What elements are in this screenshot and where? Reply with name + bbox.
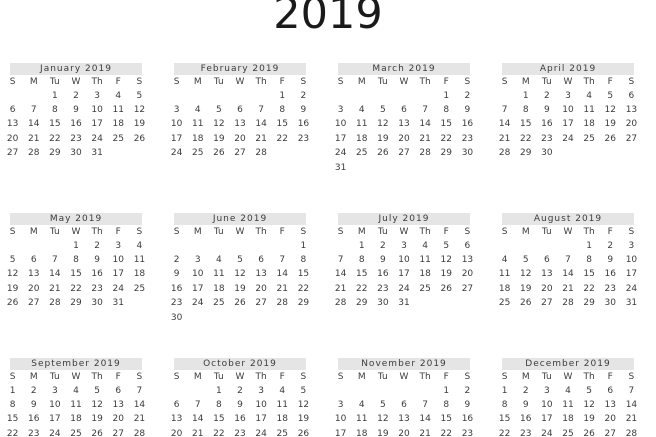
day-cell: 13 <box>229 120 250 129</box>
week-row: 123 <box>494 239 642 253</box>
week-row: 3456789 <box>330 103 478 117</box>
day-cell: 28 <box>129 430 150 437</box>
day-header-row: SMTuWThFS <box>166 75 314 89</box>
day-header-cell: F <box>436 228 457 237</box>
day-cell: 27 <box>536 299 557 308</box>
day-cell: 1 <box>44 92 65 101</box>
day-cell: 20 <box>2 135 23 144</box>
day-cell: 7 <box>272 256 293 265</box>
day-cell: 11 <box>129 256 150 265</box>
day-cell: 16 <box>293 120 314 129</box>
day-cell: 2 <box>457 387 478 396</box>
day-cell: 22 <box>208 430 229 437</box>
day-cell: 19 <box>129 120 150 129</box>
day-cell: 24 <box>330 149 351 158</box>
week-row: 30 <box>166 311 314 325</box>
day-cell: 14 <box>187 415 208 424</box>
day-cell: 30 <box>600 299 621 308</box>
day-cell: 24 <box>187 299 208 308</box>
day-cell: 3 <box>251 387 272 396</box>
week-row: 6789101112 <box>166 398 314 412</box>
month-title: February 2019 <box>174 63 306 75</box>
day-cell: 15 <box>494 415 515 424</box>
day-cell: 24 <box>44 430 65 437</box>
day-cell: 18 <box>129 270 150 279</box>
day-cell: 7 <box>23 106 44 115</box>
day-header-cell: F <box>600 373 621 382</box>
day-cell: 2 <box>87 242 108 251</box>
day-cell: 11 <box>187 120 208 129</box>
day-cell: 24 <box>166 149 187 158</box>
day-header-cell: Tu <box>44 228 65 237</box>
day-cell: 10 <box>187 270 208 279</box>
day-header-cell: M <box>515 228 536 237</box>
week-row: 17181920212223 <box>330 132 478 146</box>
day-cell: 3 <box>536 387 557 396</box>
week-row: 6789101112 <box>2 103 150 117</box>
day-cell: 13 <box>393 415 414 424</box>
year-title: 2019 <box>0 0 656 36</box>
day-cell: 26 <box>579 430 600 437</box>
day-header-cell: S <box>166 78 187 87</box>
day-cell: 27 <box>457 285 478 294</box>
day-cell: 18 <box>272 415 293 424</box>
month-april-2019: April 2019SMTuWThFS123456789101112131415… <box>494 63 642 161</box>
day-cell: 21 <box>44 285 65 294</box>
day-cell: 4 <box>579 92 600 101</box>
day-cell: 7 <box>187 401 208 410</box>
day-header-cell: W <box>229 228 250 237</box>
day-cell: 19 <box>600 120 621 129</box>
day-cell: 19 <box>229 285 250 294</box>
month-october-2019: October 2019SMTuWThFS1234567891011121314… <box>166 358 314 437</box>
day-cell: 17 <box>330 135 351 144</box>
day-cell: 30 <box>166 314 187 323</box>
day-cell: 4 <box>557 387 578 396</box>
day-header-cell: F <box>108 78 129 87</box>
day-cell: 10 <box>108 256 129 265</box>
day-cell: 26 <box>600 135 621 144</box>
week-row: 13141516171819 <box>166 413 314 427</box>
calendar-page: 2019 January 2019SMTuWThFS12345678910111… <box>0 0 656 437</box>
day-header-cell: M <box>187 78 208 87</box>
day-cell: 6 <box>23 256 44 265</box>
day-cell: 12 <box>436 256 457 265</box>
day-cell: 6 <box>251 256 272 265</box>
month-february-2019: February 2019SMTuWThFS123456789101112131… <box>166 63 314 161</box>
day-cell: 14 <box>494 120 515 129</box>
day-cell: 19 <box>293 415 314 424</box>
day-cell: 27 <box>251 299 272 308</box>
day-cell: 1 <box>351 242 372 251</box>
day-cell: 4 <box>494 256 515 265</box>
day-cell: 8 <box>515 106 536 115</box>
day-header-cell: M <box>187 228 208 237</box>
day-header-cell: Th <box>415 228 436 237</box>
week-row: 12345 <box>166 384 314 398</box>
day-cell: 23 <box>372 285 393 294</box>
day-header-cell: Th <box>579 373 600 382</box>
day-cell: 6 <box>393 106 414 115</box>
day-header-cell: W <box>65 228 86 237</box>
day-cell: 6 <box>229 106 250 115</box>
day-header-cell: Tu <box>536 78 557 87</box>
day-header-cell: M <box>23 373 44 382</box>
day-cell: 2 <box>166 256 187 265</box>
day-cell: 3 <box>166 106 187 115</box>
day-header-cell: S <box>621 78 642 87</box>
day-cell: 9 <box>166 270 187 279</box>
day-cell: 7 <box>251 106 272 115</box>
day-cell: 23 <box>293 135 314 144</box>
month-august-2019: August 2019SMTuWThFS12345678910111213141… <box>494 213 642 311</box>
day-cell: 21 <box>415 135 436 144</box>
day-cell: 16 <box>515 415 536 424</box>
day-cell: 18 <box>415 270 436 279</box>
day-header-row: SMTuWThFS <box>2 75 150 89</box>
day-cell: 23 <box>87 285 108 294</box>
day-cell: 24 <box>393 285 414 294</box>
day-cell: 11 <box>108 106 129 115</box>
day-cell: 4 <box>65 387 86 396</box>
day-cell: 2 <box>293 92 314 101</box>
day-cell: 5 <box>87 387 108 396</box>
day-cell: 13 <box>251 270 272 279</box>
day-cell: 22 <box>515 135 536 144</box>
day-cell: 5 <box>129 92 150 101</box>
day-cell: 10 <box>166 120 187 129</box>
day-header-cell: F <box>600 78 621 87</box>
day-header-cell: S <box>2 78 23 87</box>
day-cell: 12 <box>208 120 229 129</box>
day-header-cell: M <box>351 373 372 382</box>
day-cell: 1 <box>436 92 457 101</box>
day-cell: 10 <box>44 401 65 410</box>
day-header-cell: S <box>166 373 187 382</box>
day-cell: 6 <box>108 387 129 396</box>
day-header-cell: Tu <box>44 373 65 382</box>
week-row: 10111213141516 <box>166 118 314 132</box>
week-row: 21222324252627 <box>494 132 642 146</box>
day-cell: 6 <box>393 401 414 410</box>
day-header-cell: S <box>129 78 150 87</box>
day-header-cell: F <box>600 228 621 237</box>
day-cell: 20 <box>229 135 250 144</box>
week-row: 282930 <box>494 147 642 161</box>
day-cell: 5 <box>208 106 229 115</box>
day-cell: 29 <box>515 149 536 158</box>
day-cell: 23 <box>23 430 44 437</box>
day-header-cell: F <box>272 373 293 382</box>
month-title: October 2019 <box>174 358 306 370</box>
day-header-cell: Tu <box>208 373 229 382</box>
day-header-cell: Tu <box>44 78 65 87</box>
day-cell: 3 <box>330 106 351 115</box>
day-cell: 17 <box>251 415 272 424</box>
day-cell: 16 <box>23 415 44 424</box>
day-cell: 13 <box>108 401 129 410</box>
day-cell: 22 <box>272 135 293 144</box>
day-cell: 17 <box>330 430 351 437</box>
week-row: 78910111213 <box>494 103 642 117</box>
day-cell: 10 <box>87 106 108 115</box>
day-cell: 7 <box>557 256 578 265</box>
day-cell: 18 <box>65 415 86 424</box>
day-cell: 11 <box>579 106 600 115</box>
month-title: November 2019 <box>338 358 470 370</box>
day-header-row: SMTuWThFS <box>494 370 642 384</box>
day-cell: 8 <box>579 256 600 265</box>
day-cell: 4 <box>351 106 372 115</box>
day-cell: 4 <box>108 92 129 101</box>
day-cell: 19 <box>579 415 600 424</box>
day-cell: 2 <box>457 92 478 101</box>
day-cell: 23 <box>229 430 250 437</box>
week-row: 78910111213 <box>330 253 478 267</box>
day-cell: 9 <box>457 106 478 115</box>
day-cell: 20 <box>23 285 44 294</box>
day-header-cell: S <box>457 78 478 87</box>
week-row: 262728293031 <box>2 297 150 311</box>
week-row: 12345 <box>2 89 150 103</box>
day-cell: 3 <box>557 92 578 101</box>
day-cell: 10 <box>393 256 414 265</box>
day-cell: 20 <box>393 430 414 437</box>
day-cell: 12 <box>579 401 600 410</box>
day-cell: 24 <box>536 430 557 437</box>
day-cell: 10 <box>536 401 557 410</box>
day-cell: 13 <box>457 256 478 265</box>
day-cell: 5 <box>372 106 393 115</box>
day-cell: 23 <box>457 430 478 437</box>
day-cell: 12 <box>87 401 108 410</box>
day-cell: 11 <box>351 415 372 424</box>
day-cell: 29 <box>65 299 86 308</box>
day-cell: 19 <box>208 135 229 144</box>
day-cell: 17 <box>557 120 578 129</box>
week-row: 28293031 <box>330 297 478 311</box>
day-cell: 26 <box>87 430 108 437</box>
day-cell: 5 <box>600 92 621 101</box>
day-cell: 23 <box>515 430 536 437</box>
week-row: 22232425262728 <box>2 427 150 437</box>
day-cell: 17 <box>44 415 65 424</box>
day-cell: 22 <box>579 285 600 294</box>
day-cell: 3 <box>330 401 351 410</box>
day-cell: 7 <box>129 387 150 396</box>
day-cell: 8 <box>2 401 23 410</box>
day-cell: 22 <box>2 430 23 437</box>
day-cell: 26 <box>293 430 314 437</box>
day-cell: 25 <box>65 430 86 437</box>
day-header-cell: S <box>293 228 314 237</box>
day-cell: 27 <box>621 135 642 144</box>
day-cell: 31 <box>393 299 414 308</box>
day-cell: 19 <box>436 270 457 279</box>
day-cell: 12 <box>515 270 536 279</box>
day-cell: 22 <box>44 135 65 144</box>
day-cell: 26 <box>515 299 536 308</box>
day-cell: 23 <box>457 135 478 144</box>
day-cell: 9 <box>23 401 44 410</box>
day-cell: 16 <box>372 270 393 279</box>
day-header-cell: W <box>393 373 414 382</box>
day-header-cell: Th <box>251 373 272 382</box>
day-cell: 5 <box>579 387 600 396</box>
day-cell: 16 <box>229 415 250 424</box>
day-cell: 3 <box>87 92 108 101</box>
day-cell: 9 <box>457 401 478 410</box>
day-header-cell: Th <box>251 228 272 237</box>
day-cell: 25 <box>415 285 436 294</box>
day-header-cell: M <box>23 228 44 237</box>
day-cell: 18 <box>108 120 129 129</box>
day-cell: 14 <box>415 120 436 129</box>
week-row: 2425262728 <box>166 147 314 161</box>
day-header-row: SMTuWThFS <box>166 225 314 239</box>
day-cell: 8 <box>293 256 314 265</box>
day-cell: 17 <box>393 270 414 279</box>
day-cell: 10 <box>330 120 351 129</box>
day-header-cell: W <box>557 78 578 87</box>
day-cell: 26 <box>372 149 393 158</box>
day-cell: 13 <box>23 270 44 279</box>
day-cell: 12 <box>129 106 150 115</box>
day-cell: 1 <box>494 387 515 396</box>
day-cell: 20 <box>393 135 414 144</box>
day-cell: 2 <box>536 92 557 101</box>
day-cell: 22 <box>293 285 314 294</box>
day-cell: 28 <box>251 149 272 158</box>
day-cell: 9 <box>293 106 314 115</box>
day-header-cell: F <box>108 373 129 382</box>
day-cell: 1 <box>2 387 23 396</box>
day-cell: 25 <box>494 299 515 308</box>
week-row: 12 <box>166 89 314 103</box>
week-row: 31 <box>330 161 478 175</box>
day-cell: 11 <box>415 256 436 265</box>
day-cell: 23 <box>600 285 621 294</box>
day-header-cell: S <box>330 228 351 237</box>
day-cell: 31 <box>108 299 129 308</box>
day-cell: 1 <box>65 242 86 251</box>
week-row: 16171819202122 <box>166 282 314 296</box>
day-cell: 23 <box>166 299 187 308</box>
day-cell: 22 <box>65 285 86 294</box>
day-cell: 9 <box>229 401 250 410</box>
day-cell: 11 <box>208 270 229 279</box>
day-cell: 9 <box>65 106 86 115</box>
day-cell: 17 <box>108 270 129 279</box>
day-cell: 28 <box>557 299 578 308</box>
week-row: 19202122232425 <box>2 282 150 296</box>
week-row: 14151617181920 <box>494 118 642 132</box>
day-header-cell: F <box>436 78 457 87</box>
day-cell: 27 <box>600 430 621 437</box>
day-header-cell: W <box>65 78 86 87</box>
day-cell: 2 <box>600 242 621 251</box>
week-row: 17181920212223 <box>166 132 314 146</box>
week-row: 3456789 <box>166 103 314 117</box>
day-header-cell: M <box>351 228 372 237</box>
week-row: 24252627282930 <box>330 147 478 161</box>
week-row: 2728293031 <box>2 147 150 161</box>
day-cell: 15 <box>436 120 457 129</box>
day-cell: 30 <box>536 149 557 158</box>
day-header-cell: M <box>515 78 536 87</box>
day-cell: 5 <box>436 242 457 251</box>
day-cell: 3 <box>44 387 65 396</box>
day-header-cell: F <box>272 78 293 87</box>
day-cell: 1 <box>272 92 293 101</box>
day-cell: 13 <box>621 106 642 115</box>
month-title: August 2019 <box>502 213 634 225</box>
day-cell: 2 <box>65 92 86 101</box>
day-header-cell: Tu <box>208 228 229 237</box>
day-header-cell: M <box>187 373 208 382</box>
day-header-cell: M <box>351 78 372 87</box>
day-cell: 9 <box>600 256 621 265</box>
day-cell: 25 <box>129 285 150 294</box>
day-cell: 5 <box>2 256 23 265</box>
day-header-cell: S <box>2 373 23 382</box>
day-cell: 20 <box>536 285 557 294</box>
day-header-cell: S <box>494 78 515 87</box>
day-cell: 18 <box>351 135 372 144</box>
day-cell: 20 <box>600 415 621 424</box>
week-row: 1234567 <box>494 384 642 398</box>
day-header-cell: S <box>330 78 351 87</box>
day-cell: 21 <box>621 415 642 424</box>
week-row: 2345678 <box>166 253 314 267</box>
week-row: 45678910 <box>494 253 642 267</box>
day-cell: 17 <box>536 415 557 424</box>
day-cell: 8 <box>351 256 372 265</box>
day-cell: 2 <box>23 387 44 396</box>
week-row: 15161718192021 <box>494 413 642 427</box>
day-cell: 23 <box>65 135 86 144</box>
day-cell: 6 <box>621 92 642 101</box>
week-row: 14151617181920 <box>330 268 478 282</box>
day-header-cell: Tu <box>372 373 393 382</box>
day-header-cell: S <box>494 373 515 382</box>
day-cell: 15 <box>293 270 314 279</box>
week-row: 15161718192021 <box>2 413 150 427</box>
day-header-cell: W <box>557 373 578 382</box>
week-row: 9101112131415 <box>166 268 314 282</box>
week-row: 11121314151617 <box>494 268 642 282</box>
day-cell: 5 <box>293 387 314 396</box>
day-cell: 5 <box>515 256 536 265</box>
day-cell: 25 <box>108 135 129 144</box>
day-cell: 10 <box>251 401 272 410</box>
day-cell: 27 <box>2 149 23 158</box>
day-header-cell: W <box>393 78 414 87</box>
week-row: 12131415161718 <box>2 268 150 282</box>
day-cell: 20 <box>251 285 272 294</box>
day-cell: 17 <box>187 285 208 294</box>
day-header-cell: S <box>330 373 351 382</box>
day-cell: 12 <box>372 120 393 129</box>
day-cell: 14 <box>621 401 642 410</box>
day-cell: 8 <box>44 106 65 115</box>
day-cell: 15 <box>351 270 372 279</box>
week-row: 20212223242526 <box>166 427 314 437</box>
day-cell: 24 <box>87 135 108 144</box>
day-cell: 7 <box>415 106 436 115</box>
day-header-cell: S <box>2 228 23 237</box>
day-cell: 25 <box>187 149 208 158</box>
